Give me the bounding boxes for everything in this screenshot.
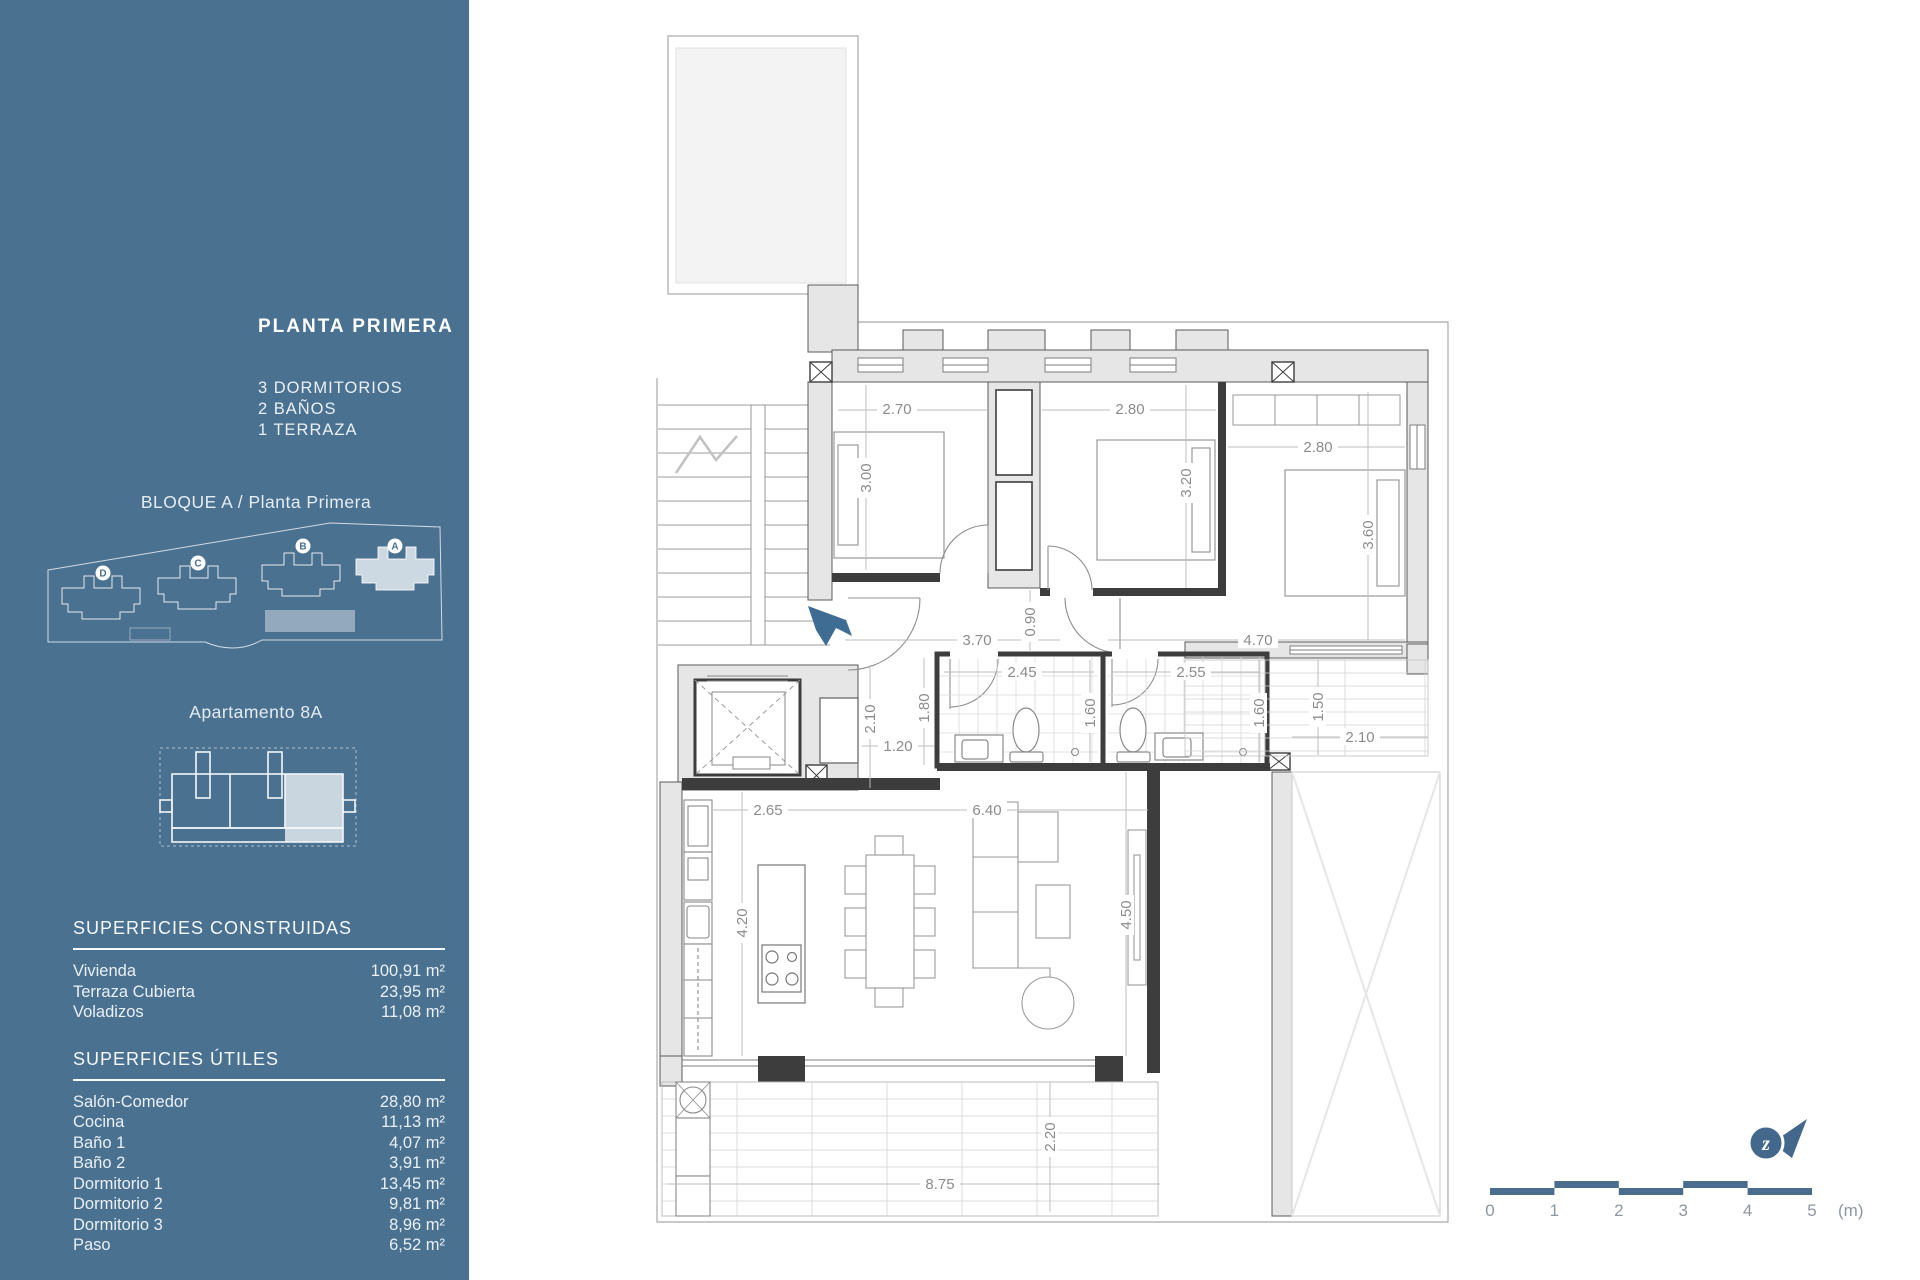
dimension-label: 0.90: [1021, 602, 1039, 642]
apartment-title: Apartamento 8A: [40, 702, 472, 723]
feature-item: 3 DORMITORIOS: [258, 378, 403, 399]
dimension-label: 3.00: [857, 458, 875, 498]
svg-text:1.50: 1.50: [1310, 692, 1327, 721]
surface-row: Terraza Cubierta23,95 m²: [73, 982, 445, 1003]
svg-text:3: 3: [1678, 1201, 1687, 1220]
bed-2: [1097, 440, 1215, 560]
surface-tables: SUPERFICIES CONSTRUIDAS Vivienda100,91 m…: [73, 918, 445, 1256]
svg-text:1.20: 1.20: [883, 738, 912, 755]
svg-text:4.70: 4.70: [1243, 632, 1272, 649]
svg-text:0: 0: [1485, 1201, 1494, 1220]
site-detail: [130, 628, 170, 640]
svg-text:4: 4: [1743, 1201, 1752, 1220]
dimension-label: 2.55: [1171, 663, 1211, 681]
page: 2.702.803.003.202.803.603.700.904.702.45…: [0, 0, 1920, 1280]
svg-text:C: C: [194, 559, 201, 570]
svg-text:2.70: 2.70: [882, 401, 911, 418]
toilet-2: [1117, 708, 1150, 762]
svg-text:4.50: 4.50: [1118, 900, 1135, 929]
surfaces-built-heading: SUPERFICIES CONSTRUIDAS: [73, 918, 445, 950]
surface-row: Dormitorio 113,45 m²: [73, 1174, 445, 1195]
svg-text:2.80: 2.80: [1303, 439, 1332, 456]
svg-text:2.80: 2.80: [1115, 401, 1144, 418]
svg-text:2.65: 2.65: [753, 802, 782, 819]
dimension-label: 2.70: [877, 400, 917, 418]
svg-text:8.75: 8.75: [925, 1176, 954, 1193]
svg-text:z: z: [1761, 1133, 1770, 1155]
svg-text:4.20: 4.20: [734, 908, 751, 937]
kitchen-island: [758, 865, 805, 1003]
staircase: [658, 405, 830, 645]
dimension-label: 1.60: [1250, 693, 1268, 733]
surface-row: Paso6,52 m²: [73, 1235, 445, 1256]
apartment-highlight: [285, 774, 343, 842]
feature-item: 1 TERRAZA: [258, 420, 403, 441]
north-arrow-icon: z: [1749, 1119, 1807, 1160]
bed-3: [1285, 470, 1405, 596]
feature-item: 2 BAÑOS: [258, 399, 403, 420]
surfaces-useful-rows: Salón-Comedor28,80 m²Cocina11,13 m²Baño …: [73, 1092, 445, 1256]
svg-text:B: B: [299, 542, 306, 553]
upper-terrace: [676, 48, 846, 283]
toilet-1: [1010, 708, 1043, 762]
svg-text:2.55: 2.55: [1176, 664, 1205, 681]
dimension-label: 1.20: [878, 737, 918, 755]
scale-bar: 012345(m): [1485, 1181, 1863, 1220]
elevator-lobby: [820, 698, 858, 763]
block-d: [62, 576, 140, 619]
bath2-door-opening: [1112, 649, 1158, 659]
pool: [265, 610, 355, 632]
surface-row: Vivienda100,91 m²: [73, 961, 445, 982]
dimension-label: 3.20: [1177, 463, 1195, 503]
sidebar: PLANTA PRIMERA 3 DORMITORIOS2 BAÑOS1 TER…: [0, 0, 469, 1280]
dimension-label: 2.20: [1041, 1117, 1059, 1157]
svg-text:5: 5: [1807, 1201, 1816, 1220]
kitchen-counters: [684, 800, 712, 1056]
svg-text:3.00: 3.00: [858, 463, 875, 492]
svg-text:1.60: 1.60: [1251, 698, 1268, 727]
apartment-locator: [140, 738, 380, 856]
svg-text:1: 1: [1550, 1201, 1559, 1220]
wardrobe-bed3: [1233, 395, 1400, 425]
svg-text:2: 2: [1614, 1201, 1623, 1220]
dimension-label: 1.80: [915, 688, 933, 728]
svg-text:3.70: 3.70: [962, 632, 991, 649]
side-terrace: [1185, 660, 1440, 1216]
svg-text:2.20: 2.20: [1042, 1122, 1059, 1151]
surfaces-useful-heading: SUPERFICIES ÚTILES: [73, 1049, 445, 1081]
dimension-label: 6.40: [967, 801, 1007, 819]
svg-text:3.20: 3.20: [1178, 468, 1195, 497]
svg-text:D: D: [99, 569, 106, 580]
dimension-label: 2.80: [1110, 400, 1150, 418]
dimension-label: 3.60: [1359, 515, 1377, 555]
svg-text:(m): (m): [1838, 1201, 1863, 1220]
dimension-label: 1.60: [1081, 693, 1099, 733]
terrace: [662, 1082, 1158, 1216]
stair-stringer: [751, 405, 765, 645]
block-c: [158, 566, 236, 609]
svg-text:2.10: 2.10: [862, 704, 879, 733]
svg-text:A: A: [391, 542, 398, 553]
pouf: [1022, 977, 1074, 1029]
dimension-label: 1.50: [1309, 687, 1327, 727]
coffee-table: [1036, 885, 1070, 938]
block-b: [262, 553, 340, 596]
vanity-1: [955, 735, 1003, 762]
dimension-label: 4.20: [733, 903, 751, 943]
svg-text:6.40: 6.40: [972, 802, 1001, 819]
dimension-label: 8.75: [920, 1175, 960, 1193]
bed-1: [834, 432, 944, 558]
surfaces-built-rows: Vivienda100,91 m²Terraza Cubierta23,95 m…: [73, 961, 445, 1023]
surface-row: Voladizos11,08 m²: [73, 1002, 445, 1023]
dimension-label: 2.65: [748, 801, 788, 819]
feature-list: 3 DORMITORIOS2 BAÑOS1 TERRAZA: [258, 378, 403, 441]
dimension-label: 4.70: [1238, 631, 1278, 649]
svg-text:2.45: 2.45: [1007, 664, 1036, 681]
dimension-label: 2.80: [1298, 438, 1338, 456]
surface-row: Dormitorio 29,81 m²: [73, 1194, 445, 1215]
dimension-label: 3.70: [957, 631, 997, 649]
floor-title: PLANTA PRIMERA: [258, 316, 454, 338]
site-plan-map: D C B A: [45, 517, 459, 649]
windows-bottom: [682, 1060, 1095, 1066]
planters: [676, 1082, 710, 1216]
surface-row: Dormitorio 38,96 m²: [73, 1215, 445, 1236]
dimension-label: 2.10: [861, 699, 879, 739]
block-title: BLOQUE A / Planta Primera: [40, 492, 472, 513]
dimension-label: 4.50: [1117, 895, 1135, 935]
svg-text:2.10: 2.10: [1345, 729, 1374, 746]
svg-text:1.80: 1.80: [916, 693, 933, 722]
svg-text:3.60: 3.60: [1360, 520, 1377, 549]
bathrooms: [937, 649, 1267, 766]
dimension-label: 2.45: [1002, 663, 1042, 681]
stair-break-line: [676, 436, 737, 473]
svg-text:0.90: 0.90: [1022, 607, 1039, 636]
bath1-door-opening: [950, 649, 998, 659]
surface-row: Baño 23,91 m²: [73, 1153, 445, 1174]
surface-row: Cocina11,13 m²: [73, 1112, 445, 1133]
dining-table: [845, 836, 935, 1007]
dimension-label: 2.10: [1340, 728, 1380, 746]
surface-row: Baño 14,07 m²: [73, 1133, 445, 1154]
svg-text:1.60: 1.60: [1082, 698, 1099, 727]
surface-row: Salón-Comedor28,80 m²: [73, 1092, 445, 1113]
